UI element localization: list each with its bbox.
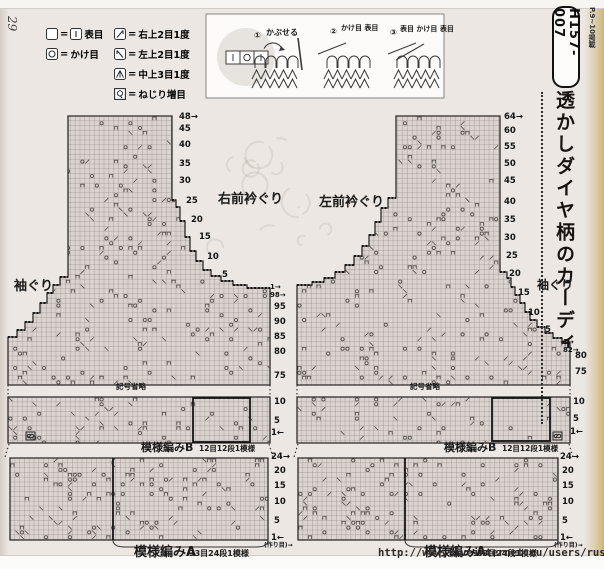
step-number: ② [330,28,337,36]
legend-row-center-dec: = 中上3目1度 [114,67,190,81]
step-label: かけ目 表目 [341,25,378,32]
pattern-b-spec-left: 12目12段1模様 [199,445,255,453]
row-number: 20 [562,467,574,476]
step-label: 表目 かけ目 表目 [400,26,454,33]
symbols-omitted-label: 記号省略 [116,383,146,391]
row-number: 20 [274,467,286,476]
pattern-code: H157-007 [551,8,581,86]
row-number: 10 [528,309,540,318]
legend-equals: = [128,89,136,100]
pattern-b-name-left: 模様編みB [141,442,193,453]
row-number: 35 [179,160,191,169]
legend-equals: = [128,69,136,80]
row-number: 5 [274,517,280,526]
legend-row-left-dec: = 左上2目1度 [114,47,190,61]
row-number: 15 [562,482,574,491]
row-number: 10 [274,498,286,507]
step-number: ③ [390,29,397,37]
right-front-neckline-label: 右前衿ぐり [218,193,283,206]
row-number: 1← [570,428,583,437]
row-number: 45 [179,125,191,134]
knit-bar-box-icon [70,28,82,40]
row-number: 24→ [271,453,290,462]
row-number: 15 [274,482,286,491]
legend-label: 表目 [84,27,103,41]
row-number: 5 [545,326,551,335]
legend-row-right-dec: = 右上2目1度 [114,27,190,41]
legend-row-twist-inc: = ねじり増目 [114,87,186,101]
pattern-a-name-left: 模様編みA [134,546,196,559]
row-number: (作り目)→ [264,543,293,549]
row-number: 64→ [504,113,523,122]
row-number: 30 [504,234,516,243]
left-dec-box-icon [114,48,126,60]
right-dec-box-icon [114,28,126,40]
row-number: 1→ [270,284,281,291]
row-number: 30 [179,177,191,186]
legend-row-yarn-over: = かけ目 [46,47,99,61]
dotted-divider [541,92,543,424]
armhole-label-right: 袖ぐり [537,279,573,291]
legend-label: かけ目 [70,47,99,61]
knitting-pattern-page: 29 = 表目 = かけ目 = 右上2目1度 = 左上2目1度 = 中上3目1度… [0,0,604,569]
step-number: ① [254,32,261,40]
row-number: 10 [207,253,219,262]
row-number: 20 [509,270,521,279]
knit-blank-box-icon [46,28,58,40]
row-number: 10 [562,498,574,507]
row-number: 5 [562,517,568,526]
row-number: 45 [504,177,516,186]
row-number: 1→ [563,339,574,346]
row-number: 55 [504,143,516,152]
row-number: 20 [191,216,203,225]
pattern-a-spec-left: 33目24段1模様 [189,550,249,558]
step-label: かぶせる [266,29,298,37]
legend-equals: = [60,29,68,40]
row-number: 60 [504,127,516,136]
pattern-code-badge: H157-007 [552,6,580,88]
legend-equals: = [128,49,136,60]
twist-inc-box-icon [114,88,126,100]
pattern-b-name-right: 模様編みB [444,442,496,453]
row-number: 85 [274,333,286,342]
page-number: 29 [6,16,18,31]
symbols-omitted-label: 記号省略 [410,383,440,391]
row-number: 40 [179,141,191,150]
row-number: 25 [506,252,518,261]
pattern-b-spec-right: 12目12段1模様 [502,445,558,453]
row-number: 5 [274,417,280,426]
row-number: 98→ [270,292,286,299]
pattern-chart-canvas [0,0,604,569]
legend-label: 右上2目1度 [138,27,189,41]
source-url: http://www.liveinternet.ru/users/russa_n… [378,548,604,559]
issue-reference: P.9~10掲載 [588,7,595,67]
row-number: 1← [271,429,284,438]
row-number: (作り目)→ [554,543,583,549]
row-number: 10 [274,398,286,407]
row-number: 5 [573,415,579,424]
legend-equals: = [128,29,136,40]
legend-row-knit: = 表目 [46,27,103,41]
legend-equals: = [60,49,68,60]
row-number: 90 [274,318,286,327]
row-number: 10 [573,398,585,407]
left-front-neckline-label: 左前衿ぐり [319,196,384,209]
row-number: 5 [222,271,228,280]
legend-label: ねじり増目 [138,87,186,101]
row-number: 80 [575,352,587,361]
row-number: 15 [518,289,530,298]
row-number: 40 [504,198,516,207]
pattern-title: 透かしダイヤ柄のカーディ [554,90,573,440]
yarn-over-box-icon [46,48,58,60]
row-number: 75 [274,372,286,381]
center-dec-box-icon [114,68,126,80]
legend-label: 中上3目1度 [138,67,189,81]
row-number: 48→ [179,113,198,122]
armhole-label-left: 袖ぐり [14,280,53,293]
row-number: 95 [274,303,286,312]
row-number: 80 [274,348,286,357]
row-number: 35 [504,216,516,225]
row-number: 24→ [560,453,579,462]
legend-label: 左上2目1度 [138,47,189,61]
row-number: 25 [186,197,198,206]
row-number: 75 [575,368,587,377]
row-number: 15 [199,233,211,242]
row-number: 50 [504,160,516,169]
